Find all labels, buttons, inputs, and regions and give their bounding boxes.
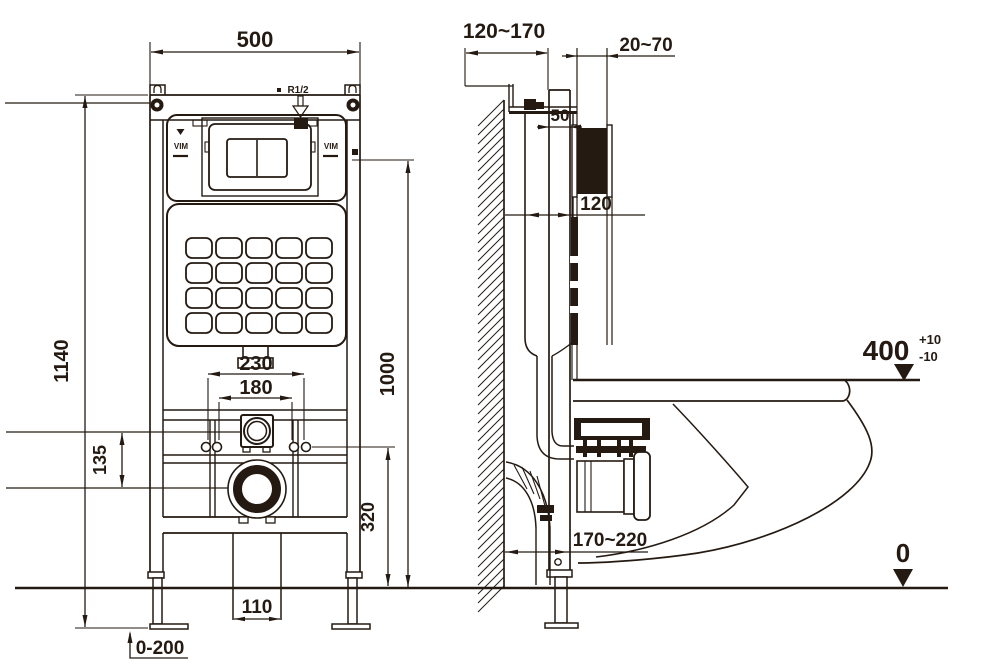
dim-depth-range-label: 120~170 [463, 20, 545, 43]
side-foot [545, 623, 578, 628]
dim-inlet-offset-label: 135 [90, 445, 110, 475]
dim-width: 500 [150, 27, 360, 88]
brand-left: VIM [174, 142, 189, 151]
brand-right: VIM [324, 142, 339, 151]
tank-grid [186, 238, 332, 333]
dim-feet-range-label: 0-200 [136, 638, 185, 659]
dim-depth-range: 120~170 [463, 20, 548, 90]
dim-seat-tol-plus: +10 [919, 332, 941, 347]
dim-drain-height-label: 320 [358, 502, 378, 532]
hanger-brackets [150, 85, 360, 112]
flush-bend [537, 436, 574, 459]
dim-cistern-depth-label: 120 [580, 194, 612, 215]
waste-elbow [506, 462, 554, 585]
toilet-frame-installation-drawing: R1/2 VIM VIM [0, 0, 1000, 667]
dim-outlet-range: 170~220 [505, 530, 648, 554]
drain-connector [577, 452, 650, 520]
flush-plate [209, 124, 311, 190]
leader-mark [352, 149, 358, 155]
upright-hole [555, 559, 561, 565]
dim-floor-datum-label: 0 [896, 538, 910, 568]
dim-seat-height: 400 +10 -10 [863, 332, 941, 381]
left-leg [153, 578, 162, 624]
flush-plate-side-block [577, 128, 607, 194]
dim-profile-depth-label: 50 [551, 106, 570, 125]
dim-drain-gap-label: 110 [242, 597, 273, 618]
water-inlet: R1/2 [277, 85, 309, 129]
dim-finish-wall-range-label: 20~70 [619, 35, 672, 56]
dim-profile-depth: 50 [537, 106, 582, 129]
dim-bolt-outer-label: 230 [239, 353, 272, 375]
dim-height: 1140 [51, 95, 148, 628]
wall-hatch [478, 100, 504, 612]
supply-fitting [241, 415, 273, 452]
dim-outlet-range-label: 170~220 [573, 530, 648, 551]
dim-inlet-offset: 135 [90, 433, 125, 487]
front-view: R1/2 VIM VIM [5, 27, 414, 659]
dim-finish-wall-range: 20~70 [562, 35, 675, 58]
dim-bolt-inner-label: 180 [239, 377, 272, 399]
dim-height-label: 1140 [51, 339, 73, 382]
dim-seat-height-label: 400 [863, 335, 910, 366]
floor-datum-triangle [893, 569, 913, 587]
access-window [202, 118, 318, 196]
left-foot [150, 624, 188, 629]
dim-feet-range: 0-200 [128, 631, 189, 659]
right-foot [332, 624, 370, 629]
brand-mark-triangle [177, 129, 185, 135]
bracket-bolt [524, 99, 536, 110]
cistern-tank [167, 204, 346, 368]
side-leg [555, 577, 567, 623]
dim-seat-tol-minus: -10 [919, 349, 938, 364]
side-view: 120~170 20~70 50 120 170~220 [463, 20, 941, 628]
technical-drawing-page: R1/2 VIM VIM [0, 0, 1000, 667]
right-leg [348, 578, 357, 624]
dim-width-label: 500 [237, 27, 274, 52]
flush-plate-panel: VIM VIM [167, 115, 358, 201]
inlet-label: R1/2 [287, 85, 309, 96]
cistern-side [525, 112, 579, 459]
dim-floor-datum: 0 [893, 538, 913, 587]
dim-drain-gap: 110 [234, 597, 280, 621]
drain-opening [228, 460, 286, 523]
seat-datum-triangle [894, 364, 914, 381]
dim-flush-height-label: 1000 [377, 352, 399, 397]
wall-section [478, 100, 504, 612]
